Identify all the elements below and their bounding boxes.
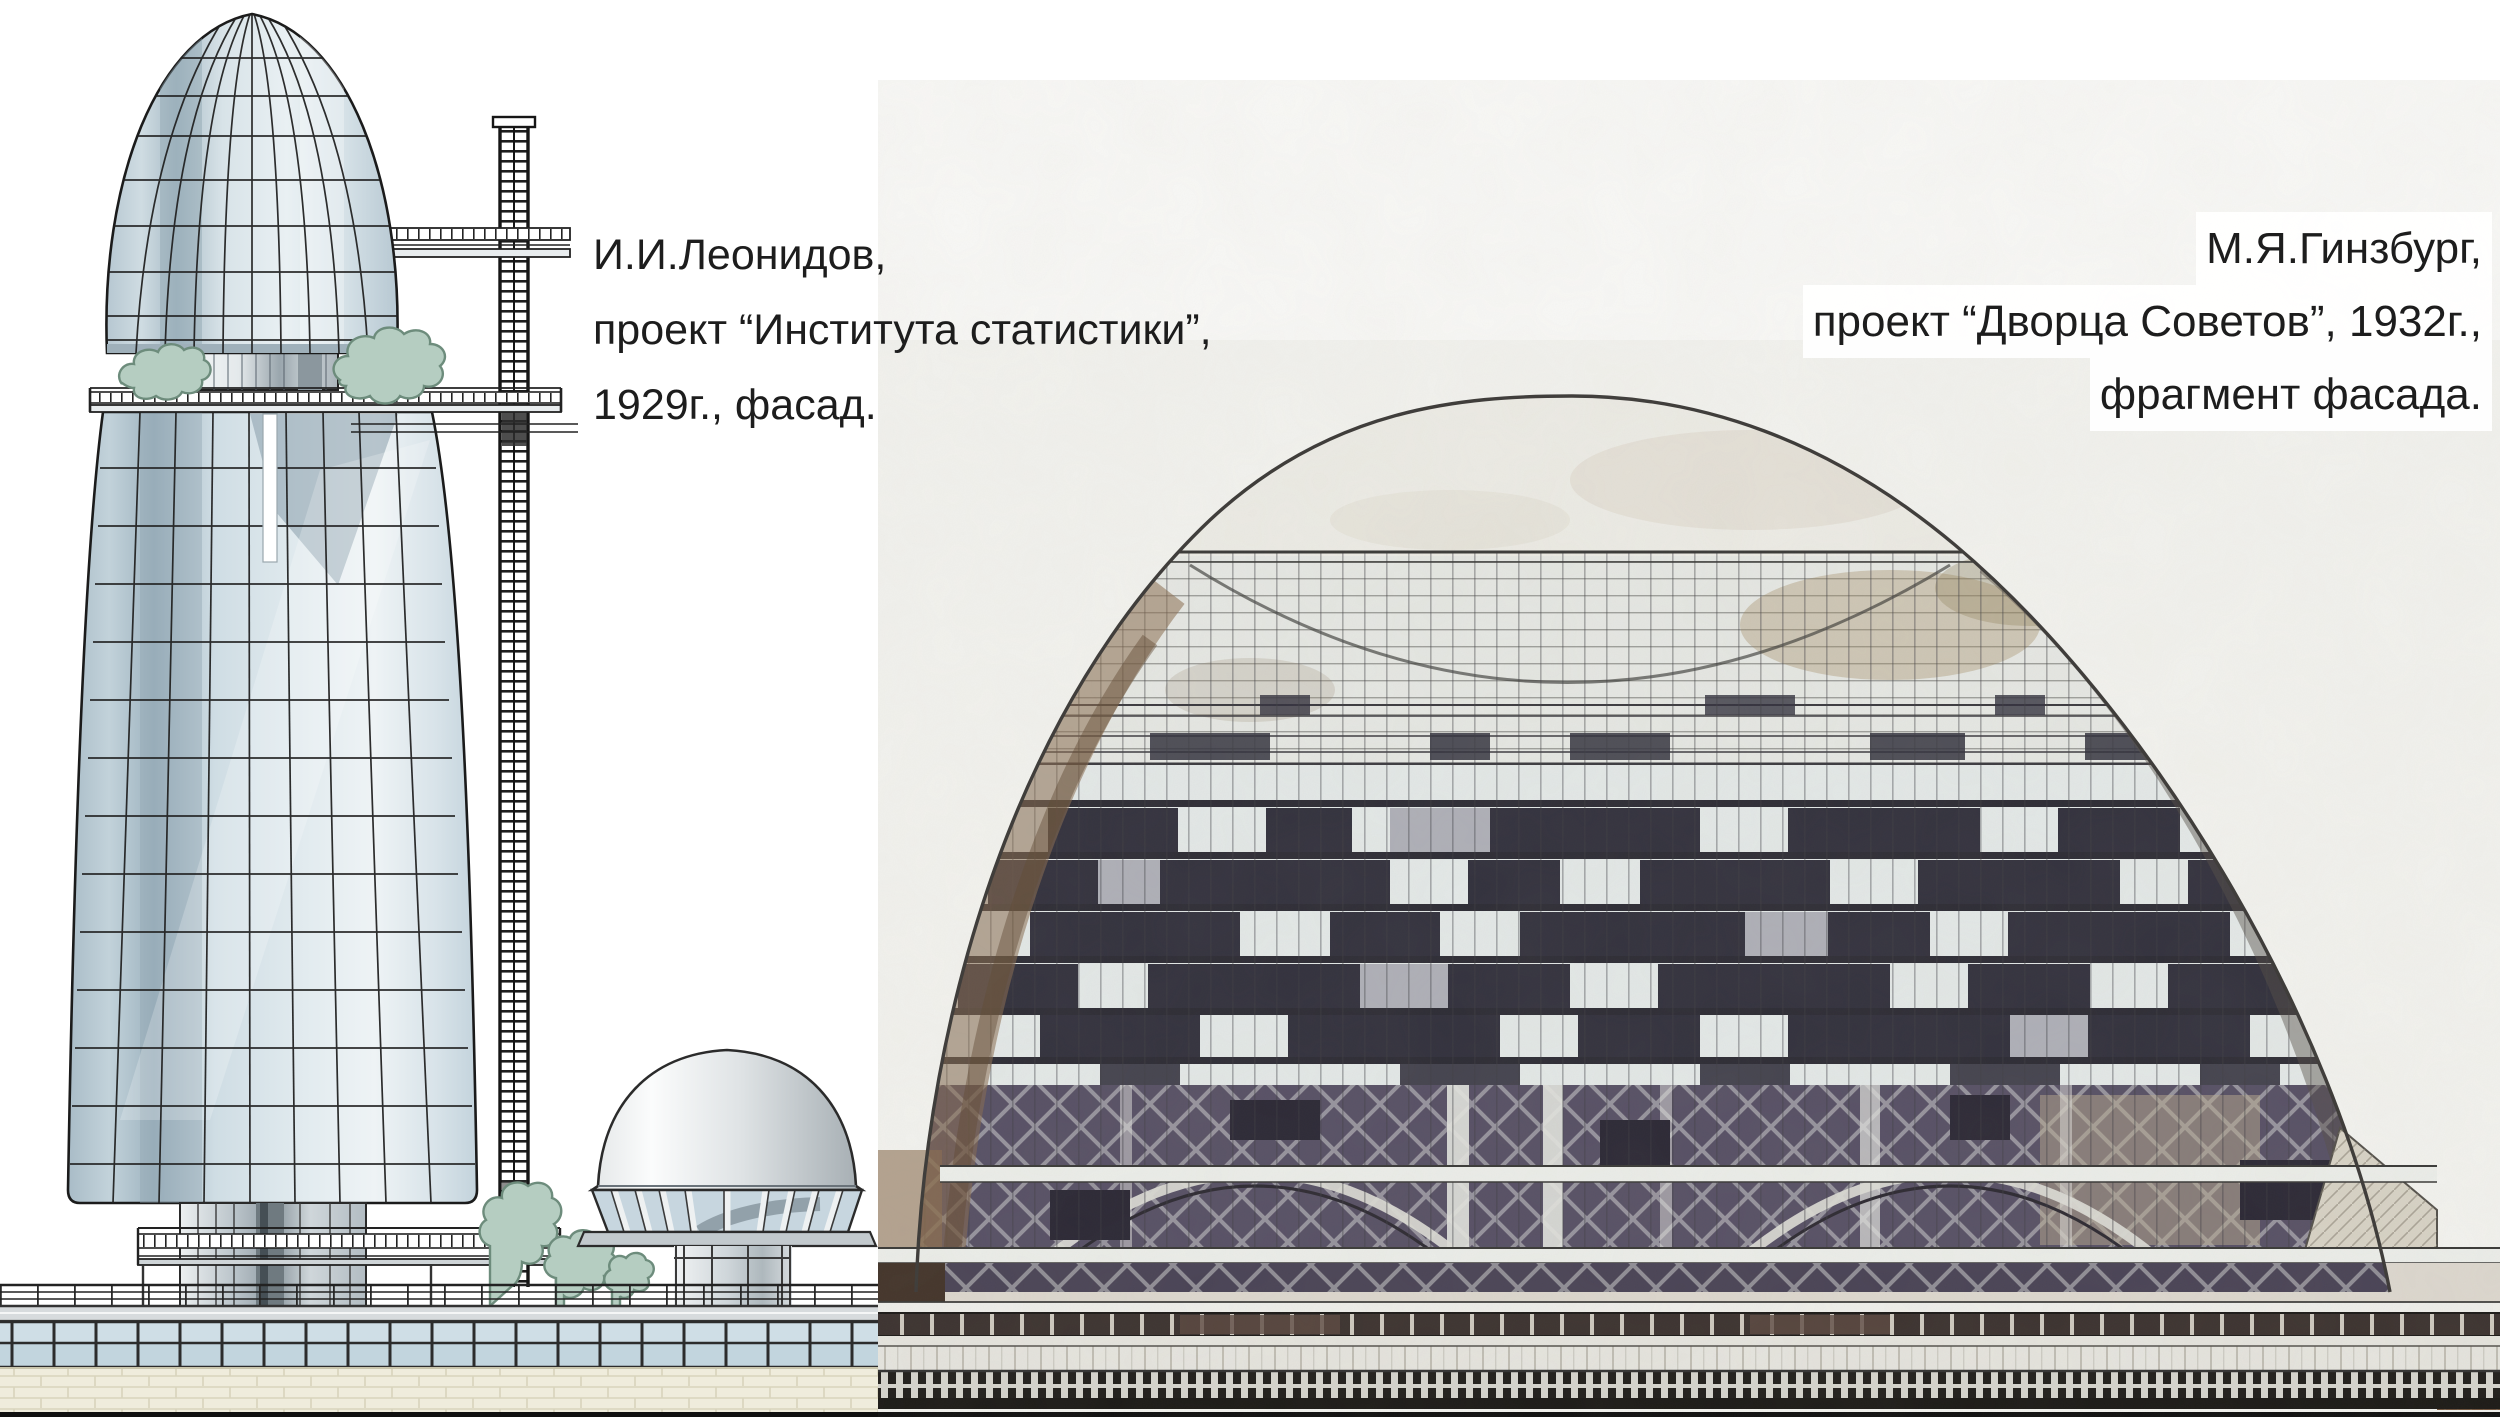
mushroom-lower-rim (578, 1232, 876, 1246)
tower-body (68, 412, 477, 1212)
mast-beam-upper (386, 228, 570, 257)
mast-top-plate (493, 117, 535, 127)
caption-ginzburg-line2: проект “Дворца Советов”, 1932г., (1803, 285, 2492, 358)
mushroom-window-ring (592, 1190, 862, 1232)
brick-base (0, 1368, 878, 1412)
caption-leonidov-line1: И.И.Леонидов, (593, 218, 1212, 293)
bottom-edge-line-left (0, 1412, 878, 1417)
caption-ginzburg: М.Я.Гинзбург, проект “Дворца Советов”, 1… (1440, 212, 2492, 431)
service-mast (493, 117, 535, 1287)
tower-body-slot (263, 414, 277, 562)
ground-railing (0, 1285, 878, 1306)
caption-leonidov-line2: проект “Института статистики”, (593, 293, 1212, 368)
mushroom-dome (592, 1050, 862, 1190)
caption-ginzburg-line1: М.Я.Гинзбург, (2196, 212, 2492, 285)
podium-window-band (0, 1322, 878, 1368)
page-canvas: И.И.Леонидов, проект “Института статисти… (0, 0, 2500, 1417)
caption-leonidov: И.И.Леонидов, проект “Института статисти… (593, 218, 1212, 443)
caption-leonidov-line3: 1929г., фасад. (593, 368, 1212, 443)
leonidov-tower-figure (0, 0, 878, 1417)
tower-cap (100, 14, 404, 354)
podium-slab (0, 1306, 878, 1322)
caption-ginzburg-line3: фрагмент фасада. (2090, 358, 2492, 431)
